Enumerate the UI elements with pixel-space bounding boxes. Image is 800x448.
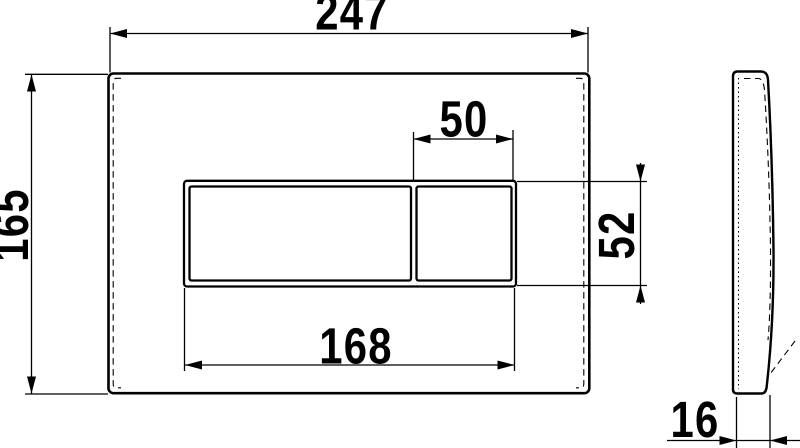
svg-text:165: 165 <box>0 188 39 261</box>
svg-text:247: 247 <box>315 0 388 41</box>
svg-text:16: 16 <box>671 391 720 448</box>
svg-text:52: 52 <box>588 211 645 260</box>
svg-text:50: 50 <box>440 91 489 148</box>
svg-text:168: 168 <box>319 318 392 375</box>
